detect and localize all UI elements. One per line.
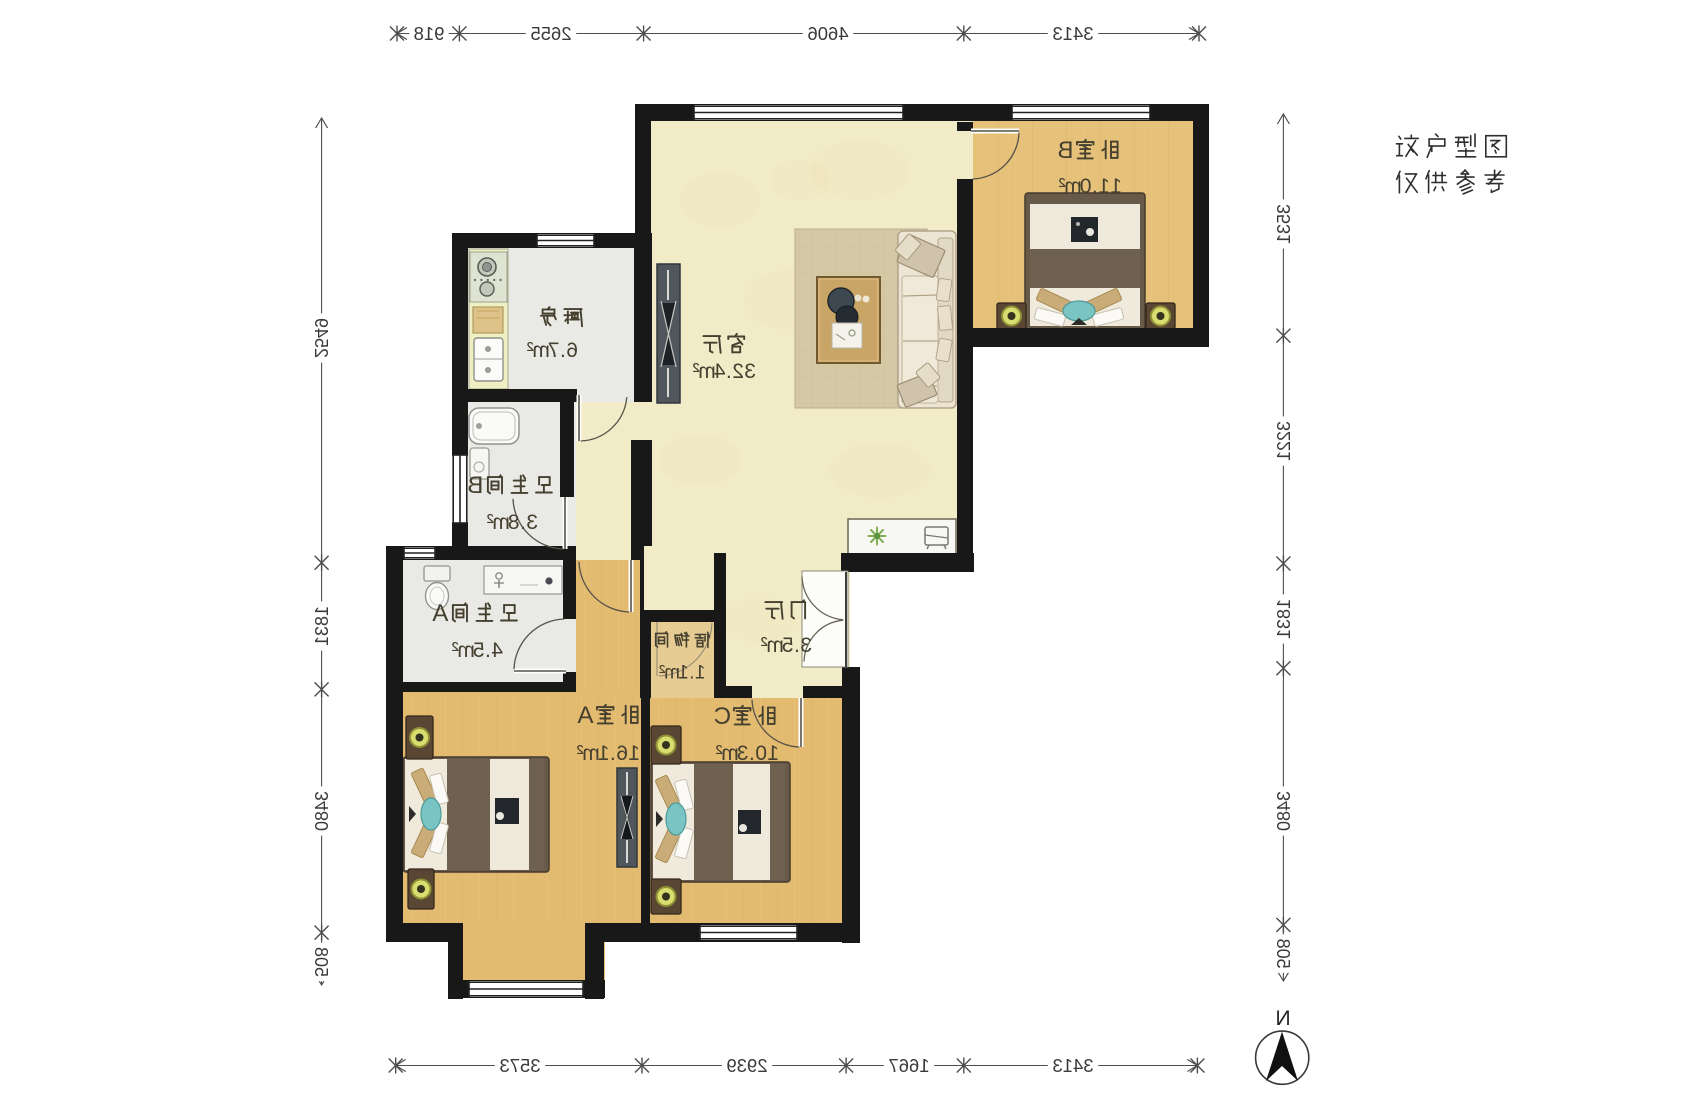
svg-text:1: 1 [628,742,640,765]
svg-text:6: 6 [616,742,628,765]
svg-text:m: m [766,634,784,657]
svg-text:N: N [1275,1007,1290,1030]
svg-text:B: B [467,472,483,499]
svg-text:.: . [520,511,526,534]
svg-text:²: ² [716,742,723,765]
svg-text:B: B [1057,137,1073,164]
svg-text:3: 3 [800,634,812,657]
svg-text:0: 0 [755,742,767,765]
svg-text:1: 1 [1098,175,1110,198]
svg-text:3413: 3413 [1052,23,1093,44]
svg-text:.: . [1092,175,1098,198]
svg-text:²: ² [487,511,494,534]
svg-text:m: m [457,639,475,662]
svg-text:3573: 3573 [499,1055,540,1076]
svg-text:1: 1 [767,742,779,765]
svg-text:2549: 2549 [311,318,331,358]
svg-text:.: . [794,634,800,657]
svg-text:2655: 2655 [530,23,571,44]
svg-text:²: ² [761,634,768,657]
svg-text:²: ² [1059,175,1066,198]
svg-text:2: 2 [732,360,744,383]
svg-text:3413: 3413 [1052,1055,1093,1076]
svg-text:3480: 3480 [1274,791,1294,831]
svg-text:.: . [485,639,491,662]
svg-text:.: . [560,339,566,362]
svg-text:m: m [1064,175,1082,198]
svg-text:3531: 3531 [1274,204,1294,244]
svg-text:m: m [492,511,510,534]
svg-text:1667: 1667 [888,1055,929,1076]
svg-text:3480: 3480 [312,791,332,831]
svg-text:²: ² [452,639,459,662]
svg-text:m: m [532,339,550,362]
svg-text:²: ² [527,339,534,362]
svg-text:.: . [726,360,732,383]
svg-text:6: 6 [566,339,578,362]
svg-text:508: 508 [311,947,331,977]
svg-text:2939: 2939 [726,1055,767,1076]
svg-text:3221: 3221 [1274,421,1294,461]
svg-text:1: 1 [695,662,706,683]
svg-text:.: . [610,742,616,765]
svg-text:1: 1 [1110,175,1122,198]
svg-text:m: m [721,742,739,765]
svg-text:508: 508 [1273,939,1293,969]
svg-text:3: 3 [744,360,756,383]
svg-text:²: ² [577,742,584,765]
svg-text:4606: 4606 [807,23,848,44]
svg-text:1831: 1831 [312,606,332,646]
svg-text:A: A [432,600,448,627]
svg-text:C: C [714,703,731,730]
svg-text:918: 918 [414,23,445,44]
svg-text:A: A [577,702,593,729]
svg-text:4: 4 [491,639,503,662]
svg-text:m: m [664,662,680,683]
svg-text:.: . [689,662,694,683]
svg-text:m: m [582,742,600,765]
svg-text:1831: 1831 [1274,599,1294,639]
svg-text:²: ² [659,662,665,683]
svg-text:.: . [749,742,755,765]
svg-text:3: 3 [526,511,538,534]
svg-text:²: ² [693,360,700,383]
svg-text:m: m [698,360,716,383]
